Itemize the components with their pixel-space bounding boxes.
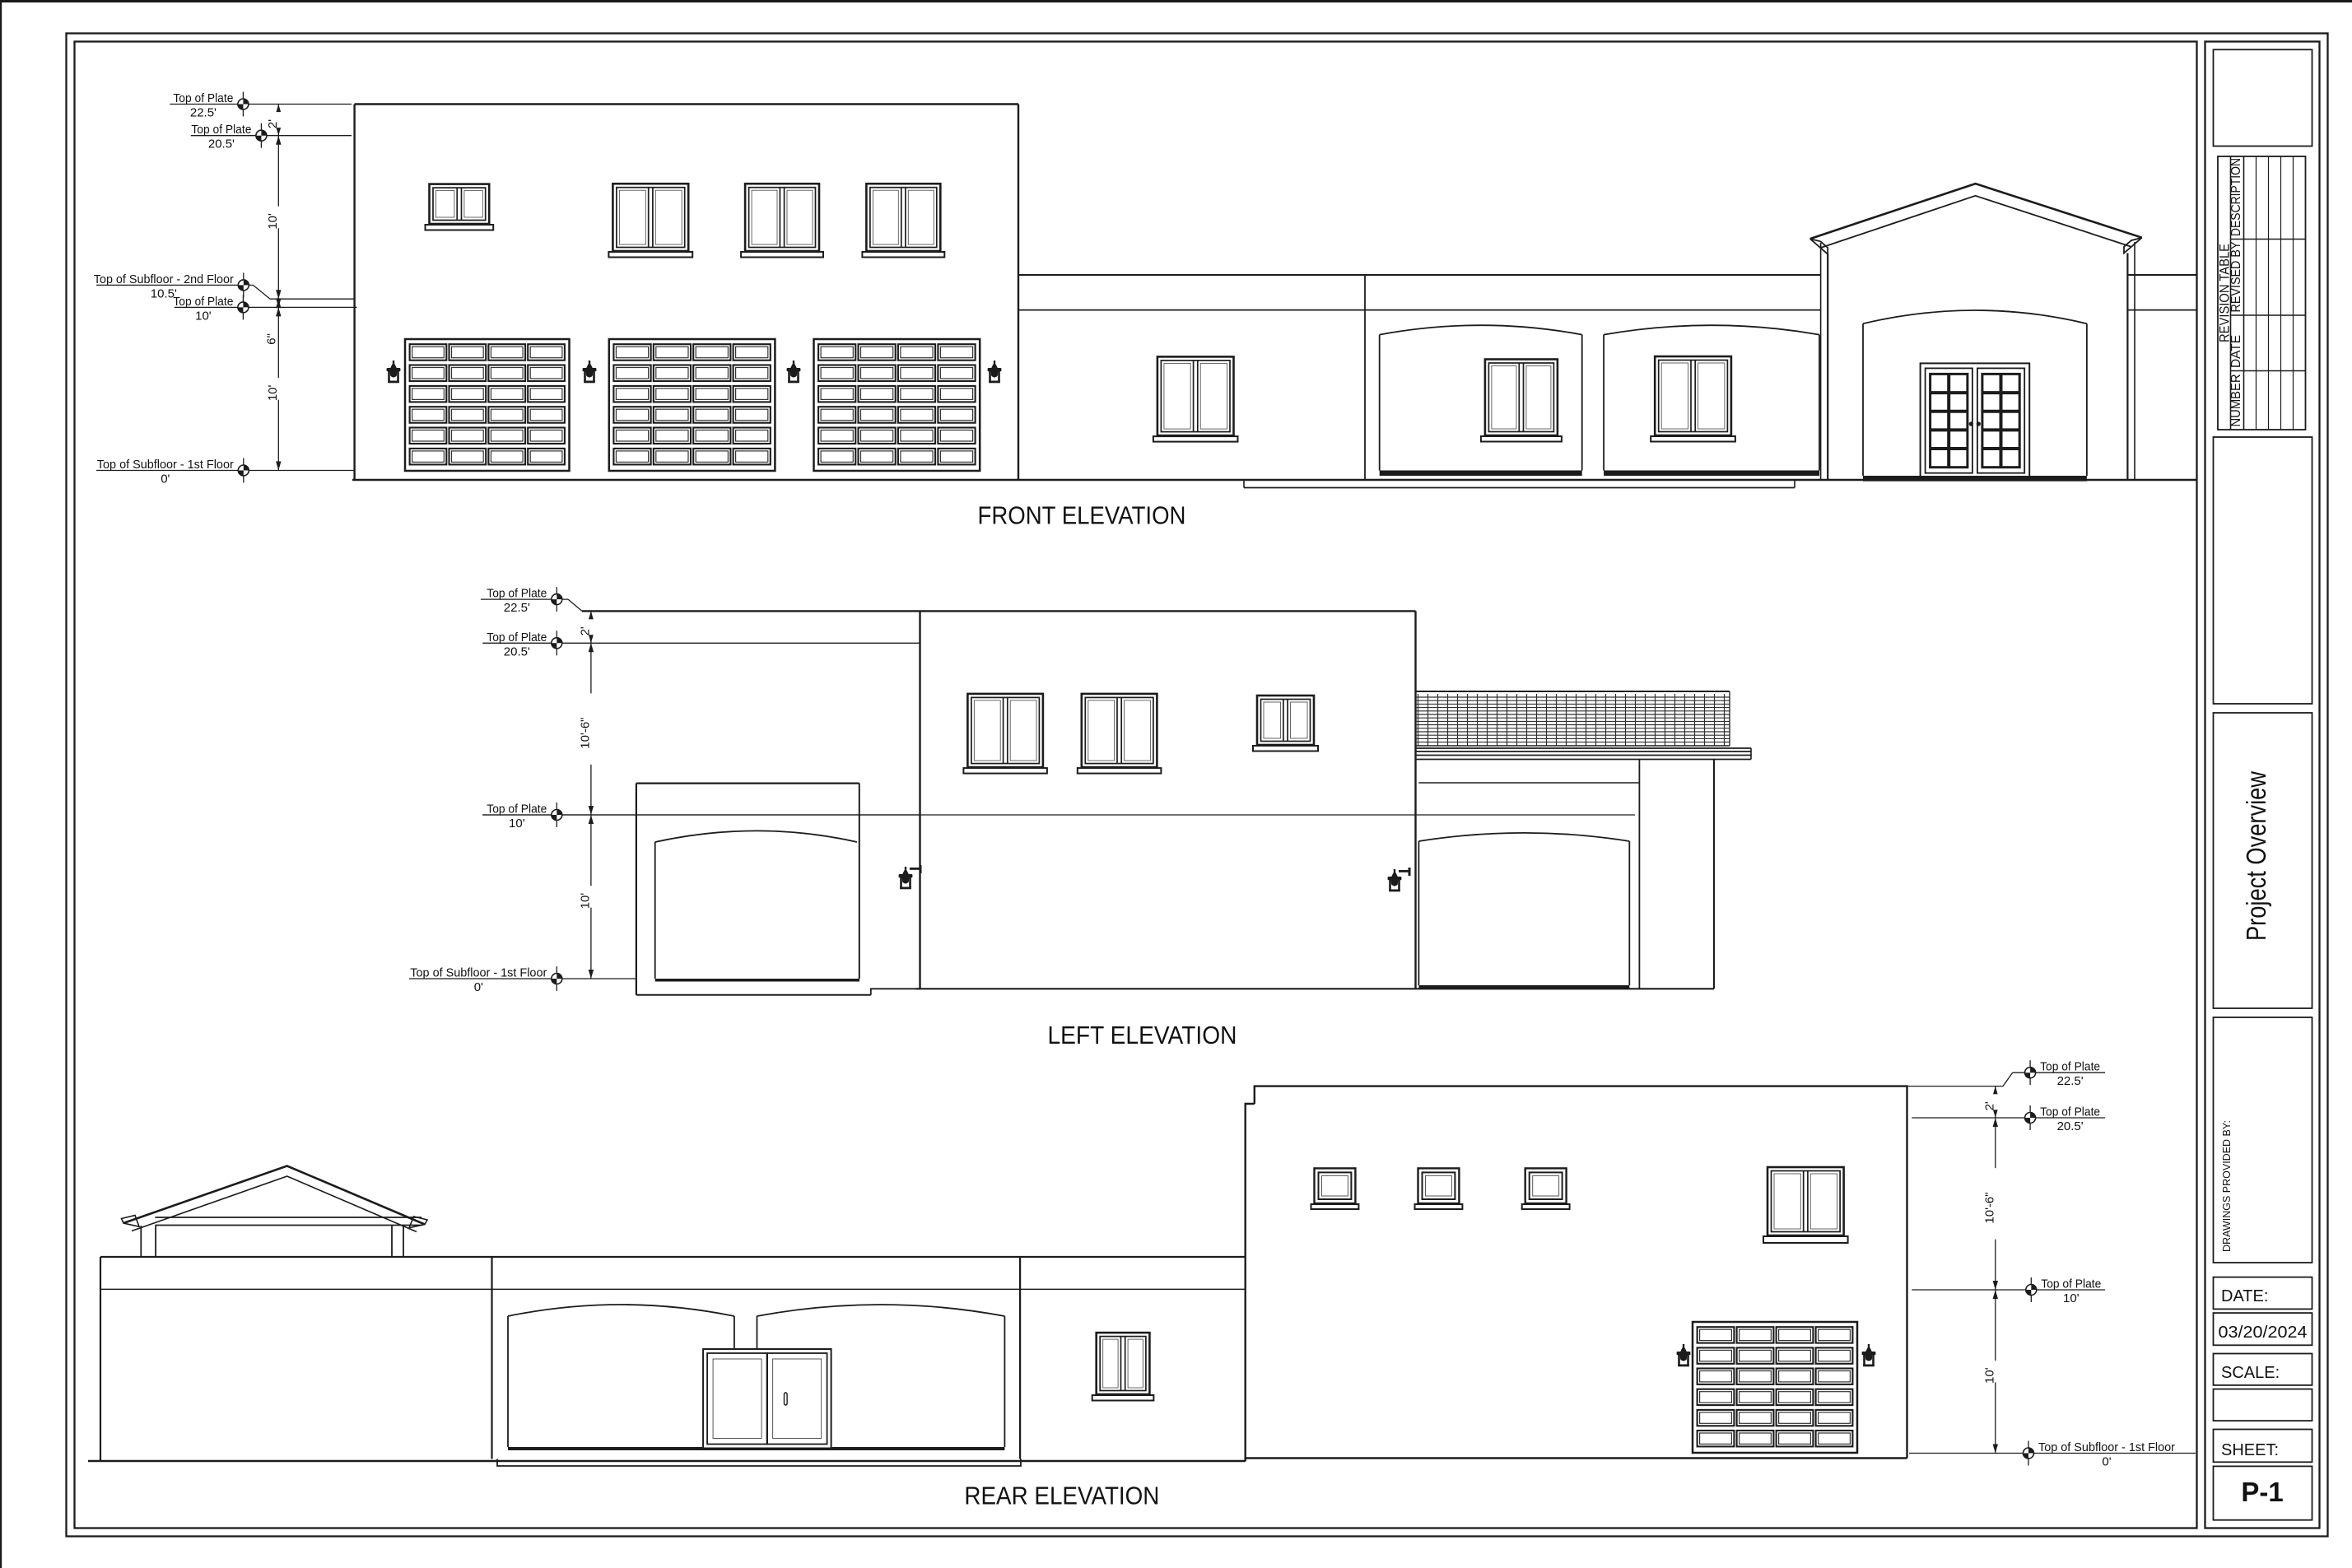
svg-text:Top of Plate: Top of Plate — [487, 803, 547, 817]
svg-text:Top of Plate: Top of Plate — [191, 123, 251, 137]
svg-text:Top of Plate: Top of Plate — [173, 91, 233, 105]
svg-text:22.5': 22.5' — [504, 601, 530, 615]
svg-text:REAR ELEVATION: REAR ELEVATION — [964, 1482, 1159, 1510]
svg-text:0': 0' — [474, 980, 483, 994]
svg-text:Top of Plate: Top of Plate — [487, 587, 547, 601]
svg-text:Top of Plate: Top of Plate — [2040, 1105, 2100, 1119]
svg-text:LEFT ELEVATION: LEFT ELEVATION — [1048, 1021, 1237, 1049]
svg-text:Project Overview: Project Overview — [2241, 771, 2271, 941]
svg-text:22.5': 22.5' — [2057, 1074, 2084, 1088]
svg-text:DATE:: DATE: — [2221, 1287, 2268, 1305]
svg-text:20.5': 20.5' — [208, 137, 235, 151]
svg-text:DESCRIPTION: DESCRIPTION — [2229, 158, 2243, 236]
svg-text:10': 10' — [509, 817, 525, 831]
svg-text:SCALE:: SCALE: — [2221, 1364, 2280, 1382]
svg-text:20.5': 20.5' — [2057, 1119, 2084, 1133]
svg-text:20.5': 20.5' — [504, 644, 530, 658]
svg-text:P-1: P-1 — [2241, 1477, 2283, 1507]
svg-text:SHEET:: SHEET: — [2221, 1441, 2279, 1459]
svg-text:Top of Plate: Top of Plate — [2041, 1277, 2101, 1291]
svg-text:0': 0' — [161, 472, 170, 486]
svg-text:Top of Subfloor - 1st Floor: Top of Subfloor - 1st Floor — [97, 458, 234, 472]
svg-text:10'-6": 10'-6" — [1982, 1192, 1996, 1223]
svg-text:0': 0' — [2102, 1455, 2111, 1469]
svg-text:Top of Plate: Top of Plate — [2040, 1060, 2100, 1074]
svg-text:10': 10' — [266, 384, 280, 401]
svg-text:Top of Plate: Top of Plate — [487, 630, 547, 644]
svg-text:REVISED BY: REVISED BY — [2229, 241, 2243, 312]
svg-text:03/20/2024: 03/20/2024 — [2219, 1324, 2308, 1342]
svg-text:Top of Subfloor - 1st Floor: Top of Subfloor - 1st Floor — [410, 966, 547, 980]
svg-text:DATE: DATE — [2229, 335, 2243, 368]
svg-text:6": 6" — [264, 333, 278, 345]
svg-text:DRAWINGS PROVIDED BY:: DRAWINGS PROVIDED BY: — [2220, 1120, 2233, 1252]
svg-text:FRONT ELEVATION: FRONT ELEVATION — [978, 501, 1186, 530]
svg-text:Top of Subfloor - 1st Floor: Top of Subfloor - 1st Floor — [2038, 1440, 2175, 1454]
svg-text:10': 10' — [195, 309, 212, 323]
svg-text:Top of Plate: Top of Plate — [173, 295, 233, 309]
svg-text:10': 10' — [2063, 1291, 2080, 1305]
svg-text:10': 10' — [266, 213, 280, 230]
svg-text:NUMBER: NUMBER — [2229, 375, 2243, 427]
svg-text:10': 10' — [578, 893, 592, 910]
svg-text:22.5': 22.5' — [190, 106, 217, 120]
svg-text:Top of Subfloor - 2nd Floor: Top of Subfloor - 2nd Floor — [94, 272, 234, 286]
svg-text:2': 2' — [1982, 1101, 1996, 1110]
svg-text:2': 2' — [266, 119, 280, 128]
svg-text:10': 10' — [1982, 1367, 1996, 1384]
svg-text:2': 2' — [578, 626, 592, 635]
svg-text:10'-6": 10'-6" — [578, 717, 592, 748]
